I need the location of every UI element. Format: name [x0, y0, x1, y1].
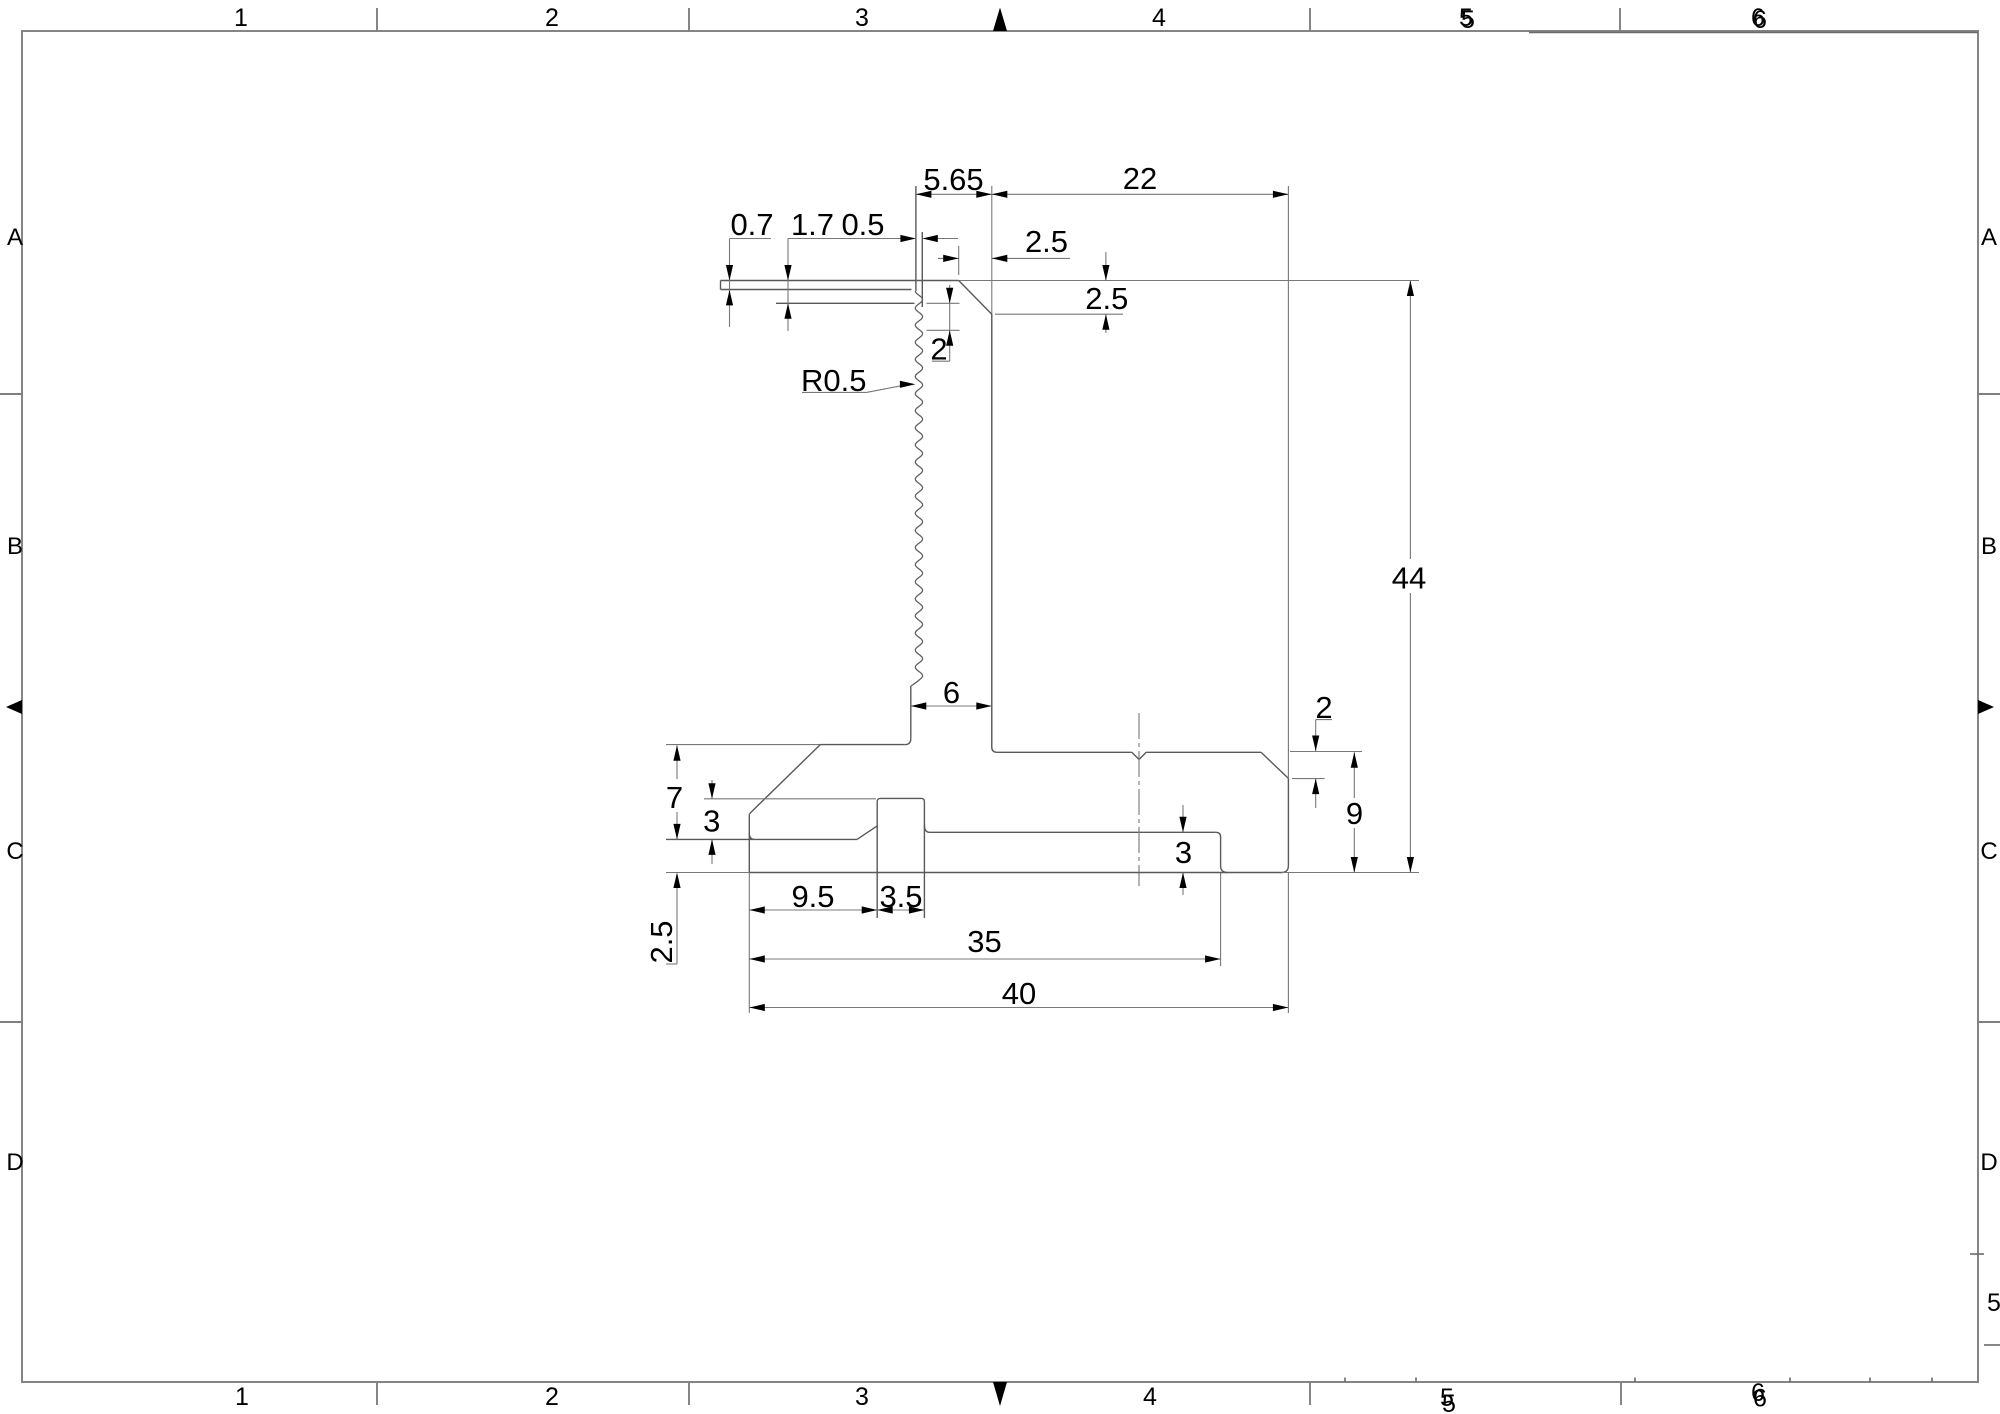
- svg-text:A: A: [1981, 224, 1997, 251]
- svg-text:4: 4: [1143, 1383, 1157, 1411]
- svg-text:3: 3: [855, 1383, 869, 1411]
- svg-text:3.5: 3.5: [879, 879, 922, 914]
- svg-text:5: 5: [1987, 1289, 2000, 1317]
- svg-text:9.5: 9.5: [791, 879, 834, 914]
- svg-text:5.65: 5.65: [923, 162, 983, 197]
- svg-text:D: D: [6, 1149, 23, 1176]
- svg-text:0.7: 0.7: [730, 207, 773, 242]
- svg-text:2: 2: [930, 331, 947, 366]
- svg-text:0.5: 0.5: [841, 207, 884, 242]
- svg-text:3: 3: [1175, 835, 1192, 870]
- svg-text:6: 6: [1753, 1385, 1767, 1413]
- svg-text:C: C: [6, 838, 23, 865]
- svg-text:2: 2: [545, 4, 559, 32]
- svg-text:7: 7: [666, 780, 683, 815]
- svg-text:44: 44: [1392, 561, 1426, 596]
- svg-text:2.5: 2.5: [644, 920, 679, 963]
- svg-text:35: 35: [967, 924, 1001, 959]
- svg-text:4: 4: [1152, 4, 1166, 32]
- svg-text:5: 5: [1442, 1390, 1456, 1414]
- svg-text:6: 6: [1753, 6, 1767, 34]
- svg-text:40: 40: [1002, 976, 1036, 1011]
- svg-text:22: 22: [1123, 161, 1157, 196]
- svg-text:3: 3: [703, 803, 720, 838]
- svg-text:5: 5: [1461, 6, 1475, 34]
- svg-text:2.5: 2.5: [1025, 224, 1068, 259]
- svg-text:D: D: [1980, 1149, 1997, 1176]
- svg-text:2.5: 2.5: [1085, 281, 1128, 316]
- svg-text:1.7: 1.7: [791, 207, 834, 242]
- svg-text:6: 6: [943, 675, 960, 710]
- svg-text:1: 1: [234, 4, 248, 32]
- svg-text:2: 2: [1315, 690, 1332, 725]
- svg-text:C: C: [1980, 838, 1997, 865]
- svg-text:B: B: [1981, 533, 1997, 560]
- svg-text:B: B: [7, 533, 23, 560]
- svg-text:9: 9: [1346, 796, 1363, 831]
- svg-text:2: 2: [545, 1383, 559, 1411]
- svg-text:3: 3: [855, 4, 869, 32]
- svg-text:A: A: [7, 224, 23, 251]
- svg-text:1: 1: [235, 1383, 249, 1411]
- svg-text:R0.5: R0.5: [801, 363, 866, 398]
